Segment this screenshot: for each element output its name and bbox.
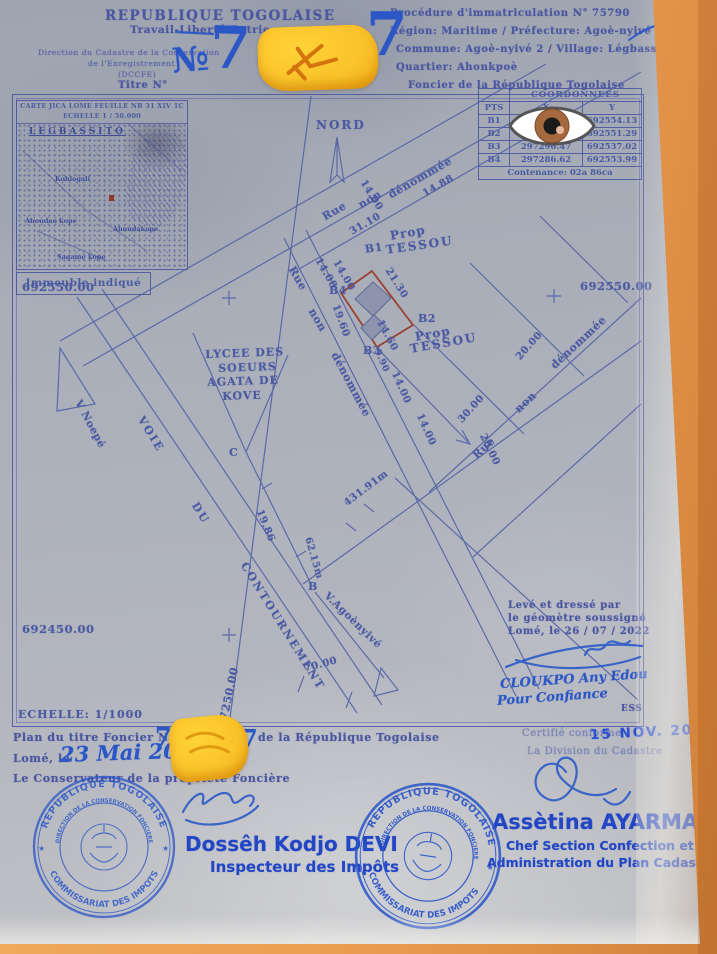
ink-signatures [0,0,717,954]
pen-stroke-top-right [629,24,687,40]
fist-detail-lines [257,24,379,92]
eye-emoji-sticker [504,92,600,160]
fist-detail-lines [167,712,251,784]
conservateur-signature [183,793,258,825]
surveyor-signature [506,641,642,668]
chief-signature [536,758,630,805]
fist-emoji-sticker-footer [167,712,251,784]
eye-highlight [556,126,564,134]
fist-emoji-sticker-header [257,24,379,92]
document-photo: REPUBLIQUE TOGOLAISE Travail-Liberté-Pat… [0,0,717,954]
cadastral-plan-paper: REPUBLIQUE TOGOLAISE Travail-Liberté-Pat… [0,0,717,944]
motto-underline-ink [176,32,213,34]
